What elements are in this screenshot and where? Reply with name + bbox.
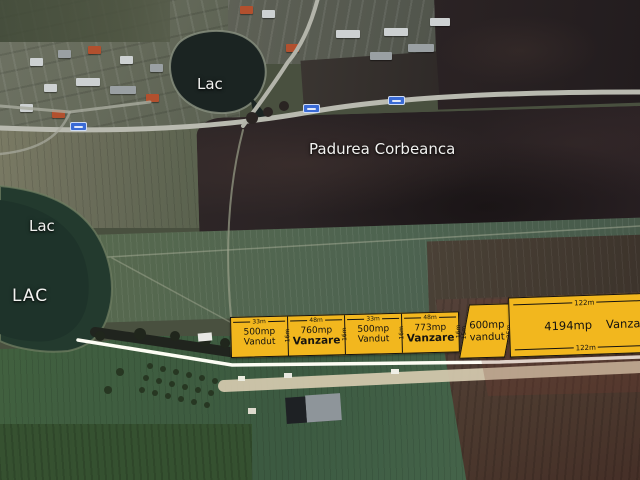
parcel-500mp-2: 16m 33m 500mp Vandut <box>344 314 402 354</box>
frontage-ruler: 33m <box>347 314 399 324</box>
depth-label: 16m <box>399 326 405 340</box>
frontage-ruler: 33m <box>233 317 285 327</box>
terrain-overlay <box>0 0 640 480</box>
parcel-area: 4194mp <box>544 318 592 334</box>
parcel-760mp: 16m 48m 760mp Vanzare <box>287 315 345 355</box>
road-shield-text <box>74 126 83 128</box>
road-shield-text <box>392 100 401 102</box>
frontage-ruler-bottom: 122m <box>515 341 640 355</box>
parcel-773mp: 16m 48m 773mp Vanzare 16m <box>401 312 459 352</box>
parcel-status: Vanzare <box>293 335 341 347</box>
depth-label: 16m <box>342 328 348 342</box>
farm-building <box>198 332 213 341</box>
frontage-ruler: 48m <box>290 315 342 325</box>
lake-left-shape <box>0 186 112 352</box>
parcel-strip: 33m 500mp Vandut 16m 48m 760mp Vanzare 1… <box>230 311 460 358</box>
depth-label: 15m <box>462 326 468 340</box>
orchard-trees <box>104 363 218 408</box>
lake-label: LAC <box>12 286 48 306</box>
road-shield <box>70 122 87 131</box>
frontage-ruler: 48m <box>404 312 456 322</box>
parcel-status: Vandut <box>244 337 276 349</box>
parcel-status: Vandut <box>358 334 390 346</box>
lake-label: Lac <box>197 75 223 93</box>
road-shield <box>388 96 405 105</box>
aerial-map: Lac Padurea Corbeanca Lac LAC 33m 500mp … <box>0 0 640 480</box>
parcel-4194mp: 122m 4194mp Vanzare 122m <box>508 292 640 357</box>
depth-label: 16m <box>285 329 291 343</box>
forest-label: Padurea Corbeanca <box>309 140 455 158</box>
lake-label: Lac <box>29 217 55 235</box>
road-shield <box>303 104 320 113</box>
parcel-status: Vanzare <box>606 316 640 332</box>
parcel-600mp: 15m 600mp vandut 35m <box>459 303 515 359</box>
parcel-500mp-1: 33m 500mp Vandut <box>231 317 288 357</box>
parcel-area: 600mp <box>469 320 504 332</box>
building <box>285 393 342 424</box>
road-shield-text <box>307 108 316 110</box>
frontage-ruler-top: 122m <box>513 296 640 310</box>
parcel-status: Vanzare <box>407 333 455 345</box>
parcel-status: vandut <box>470 332 505 344</box>
